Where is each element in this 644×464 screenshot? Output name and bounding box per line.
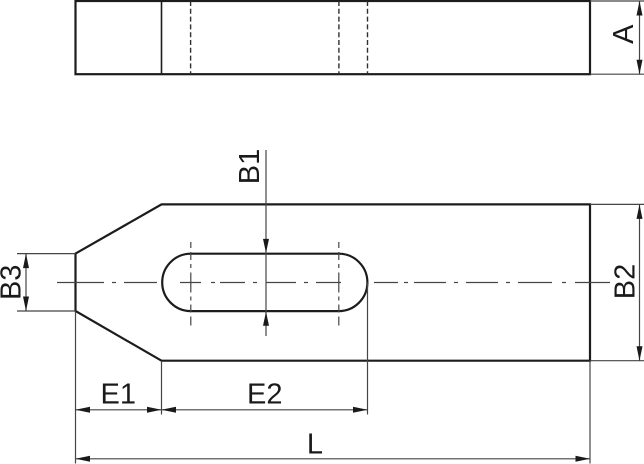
svg-text:B1: B1	[234, 149, 266, 184]
svg-text:L: L	[307, 428, 323, 460]
svg-text:E2: E2	[247, 379, 282, 411]
svg-text:A: A	[608, 24, 640, 44]
svg-text:B2: B2	[610, 264, 642, 299]
svg-text:E1: E1	[101, 379, 136, 411]
svg-text:B3: B3	[0, 265, 28, 300]
